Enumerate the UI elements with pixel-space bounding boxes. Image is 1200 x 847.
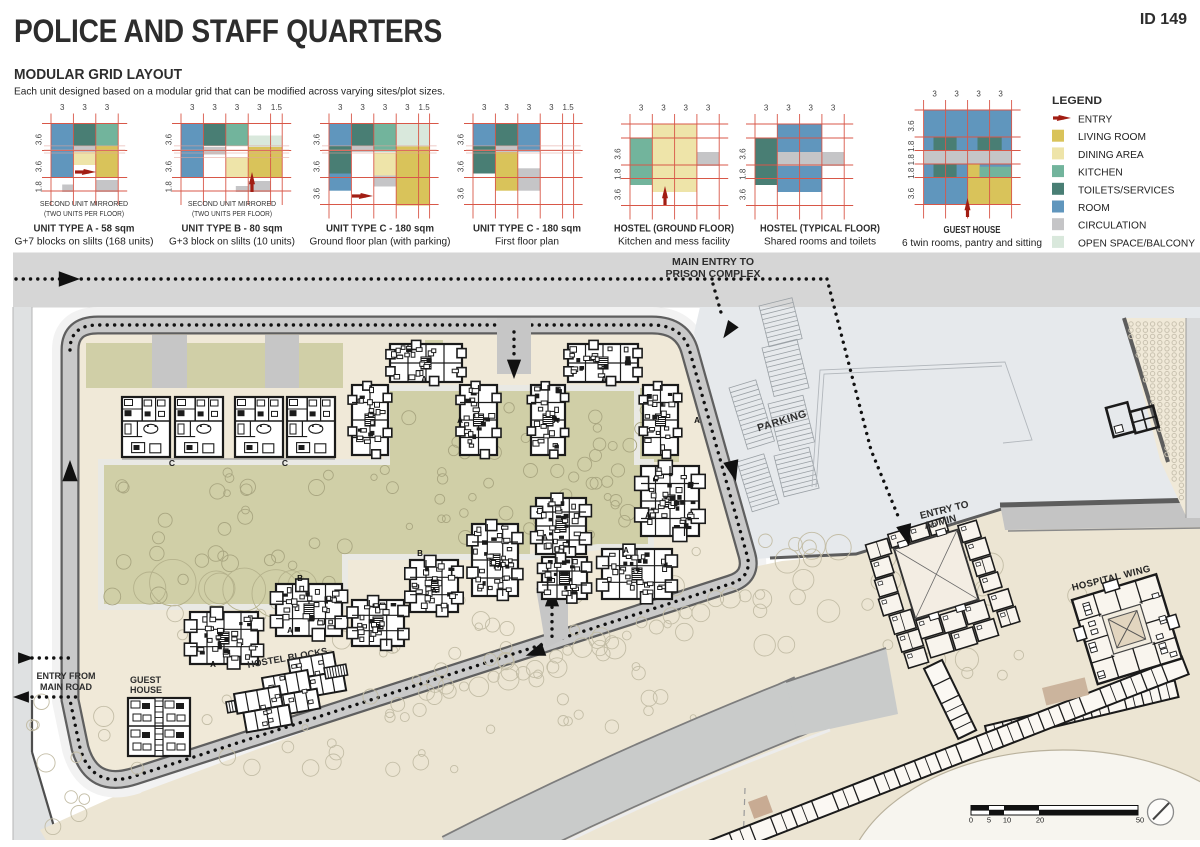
svg-text:Ground floor plan (with parkin: Ground floor plan (with parking) (310, 237, 451, 248)
svg-text:3.6: 3.6 (313, 187, 322, 199)
svg-text:3.6: 3.6 (313, 160, 322, 172)
svg-text:GUEST: GUEST (130, 675, 162, 685)
svg-text:MAIN ENTRY TO: MAIN ENTRY TO (672, 256, 754, 268)
svg-text:3: 3 (405, 103, 410, 112)
svg-text:3.6: 3.6 (457, 187, 466, 199)
svg-text:3: 3 (706, 104, 711, 113)
svg-text:3.6: 3.6 (614, 188, 623, 200)
svg-text:3: 3 (482, 103, 487, 112)
svg-text:1.5: 1.5 (563, 103, 575, 112)
svg-text:Shared rooms and toilets: Shared rooms and toilets (764, 237, 876, 248)
svg-text:3: 3 (190, 103, 195, 112)
svg-text:UNIT TYPE C - 180 sqm: UNIT TYPE C - 180 sqm (473, 223, 581, 235)
svg-text:3.6: 3.6 (165, 160, 174, 172)
svg-text:A: A (553, 416, 559, 425)
svg-text:3: 3 (60, 103, 65, 112)
svg-text:First floor plan: First floor plan (495, 237, 559, 248)
svg-text:3: 3 (661, 104, 666, 113)
svg-text:3: 3 (976, 90, 981, 99)
svg-text:(TWO UNITS PER FLOOR): (TWO UNITS PER FLOOR) (44, 211, 124, 218)
svg-text:UNIT TYPE C - 180 sqm: UNIT TYPE C - 180 sqm (326, 223, 434, 235)
svg-text:C: C (282, 458, 288, 468)
svg-text:3.6: 3.6 (457, 133, 466, 145)
svg-text:3: 3 (527, 103, 532, 112)
svg-text:UNIT TYPE B - 80 sqm: UNIT TYPE B - 80 sqm (182, 223, 283, 235)
svg-text:Each unit designed based on a: Each unit designed based on a modular gr… (14, 86, 445, 98)
svg-text:A: A (542, 533, 548, 542)
svg-text:3: 3 (105, 103, 110, 112)
svg-text:A: A (421, 375, 427, 384)
svg-text:3.6: 3.6 (907, 120, 916, 132)
svg-text:1.8: 1.8 (165, 181, 174, 193)
svg-text:TOILETS/SERVICES: TOILETS/SERVICES (1078, 185, 1175, 196)
svg-text:3.6: 3.6 (35, 133, 44, 145)
svg-text:A: A (431, 586, 437, 595)
svg-text:3: 3 (998, 90, 1003, 99)
svg-text:1.8: 1.8 (35, 181, 44, 193)
svg-text:3: 3 (831, 104, 836, 113)
svg-text:Kitchen and mess facility: Kitchen and mess facility (618, 237, 730, 248)
svg-text:G+7 blocks on slilts (168 unit: G+7 blocks on slilts (168 units) (15, 237, 154, 248)
svg-text:10: 10 (1003, 816, 1011, 825)
svg-text:LEGEND: LEGEND (1052, 95, 1102, 107)
svg-text:3: 3 (764, 104, 769, 113)
svg-text:PRISON COMPLEX: PRISON COMPLEX (665, 268, 760, 280)
svg-text:50: 50 (1136, 816, 1144, 825)
svg-text:HOSTEL (TYPICAL FLOOR): HOSTEL (TYPICAL FLOOR) (760, 223, 880, 235)
svg-text:0: 0 (969, 816, 973, 825)
svg-text:3: 3 (954, 90, 959, 99)
svg-text:3.6: 3.6 (739, 148, 748, 160)
svg-text:ID 149: ID 149 (1140, 11, 1187, 28)
svg-text:3.6: 3.6 (907, 187, 916, 199)
svg-text:SECOND UNIT MIRRORED: SECOND UNIT MIRRORED (188, 201, 276, 208)
svg-text:3: 3 (212, 103, 217, 112)
svg-text:5: 5 (987, 816, 991, 825)
svg-text:1.8: 1.8 (614, 168, 623, 180)
svg-text:A: A (457, 416, 463, 425)
svg-text:OPEN SPACE/BALCONY: OPEN SPACE/BALCONY (1078, 238, 1195, 249)
svg-text:3: 3 (338, 103, 343, 112)
svg-text:MODULAR GRID LAYOUT: MODULAR GRID LAYOUT (14, 67, 182, 83)
svg-text:6 twin rooms, pantry and sitti: 6 twin rooms, pantry and sitting (902, 238, 1042, 249)
svg-text:C: C (169, 458, 175, 468)
svg-text:1.8: 1.8 (907, 140, 916, 152)
svg-text:G+3 block on slilts (10 units): G+3 block on slilts (10 units) (169, 237, 295, 248)
svg-text:3.6: 3.6 (739, 188, 748, 200)
svg-text:3: 3 (82, 103, 87, 112)
svg-text:3: 3 (684, 104, 689, 113)
svg-text:LIVING ROOM: LIVING ROOM (1078, 132, 1146, 143)
svg-text:POLICE AND STAFF QUARTERS: POLICE AND STAFF QUARTERS (14, 13, 442, 49)
svg-text:1.8: 1.8 (907, 154, 916, 166)
svg-text:3: 3 (235, 103, 240, 112)
svg-text:GUEST HOUSE: GUEST HOUSE (944, 224, 1001, 236)
svg-text:SECOND UNIT MIRRORED: SECOND UNIT MIRRORED (40, 201, 128, 208)
svg-text:A: A (287, 626, 293, 635)
svg-text:A: A (694, 416, 700, 425)
svg-text:3: 3 (383, 103, 388, 112)
svg-text:1.8: 1.8 (739, 168, 748, 180)
svg-text:DINING AREA: DINING AREA (1078, 150, 1144, 161)
svg-text:HOUSE: HOUSE (130, 685, 162, 695)
svg-text:1.5: 1.5 (419, 103, 431, 112)
svg-text:(TWO UNITS PER FLOOR): (TWO UNITS PER FLOOR) (192, 211, 272, 218)
svg-text:3.6: 3.6 (313, 133, 322, 145)
svg-text:3: 3 (549, 103, 554, 112)
svg-text:A: A (645, 511, 651, 520)
svg-text:3: 3 (932, 90, 937, 99)
svg-text:KITCHEN: KITCHEN (1078, 168, 1123, 179)
svg-text:1.5: 1.5 (271, 103, 283, 112)
svg-text:3: 3 (360, 103, 365, 112)
svg-text:CIRCULATION: CIRCULATION (1078, 221, 1146, 232)
svg-text:A: A (623, 546, 629, 555)
svg-text:A: A (210, 660, 216, 669)
svg-text:HOSTEL (GROUND FLOOR): HOSTEL (GROUND FLOOR) (614, 223, 734, 235)
svg-text:UNIT TYPE A - 58 sqm: UNIT TYPE A - 58 sqm (34, 223, 135, 235)
svg-text:ENTRY FROM: ENTRY FROM (36, 671, 95, 681)
svg-text:A: A (601, 375, 607, 384)
svg-text:B: B (417, 549, 423, 558)
svg-text:MAIN ROAD: MAIN ROAD (40, 682, 92, 692)
svg-text:3: 3 (257, 103, 262, 112)
svg-text:1.8: 1.8 (907, 167, 916, 179)
svg-text:3.6: 3.6 (457, 160, 466, 172)
svg-text:3: 3 (786, 104, 791, 113)
svg-text:3.6: 3.6 (614, 148, 623, 160)
svg-text:3: 3 (504, 103, 509, 112)
svg-text:ROOM: ROOM (1078, 203, 1110, 214)
svg-text:ENTRY: ENTRY (1078, 115, 1113, 126)
svg-text:3.6: 3.6 (165, 133, 174, 145)
svg-text:3: 3 (809, 104, 814, 113)
svg-text:20: 20 (1036, 816, 1044, 825)
svg-text:3.6: 3.6 (35, 160, 44, 172)
svg-text:B: B (297, 574, 303, 583)
svg-text:3: 3 (639, 104, 644, 113)
svg-text:A: A (497, 561, 503, 570)
